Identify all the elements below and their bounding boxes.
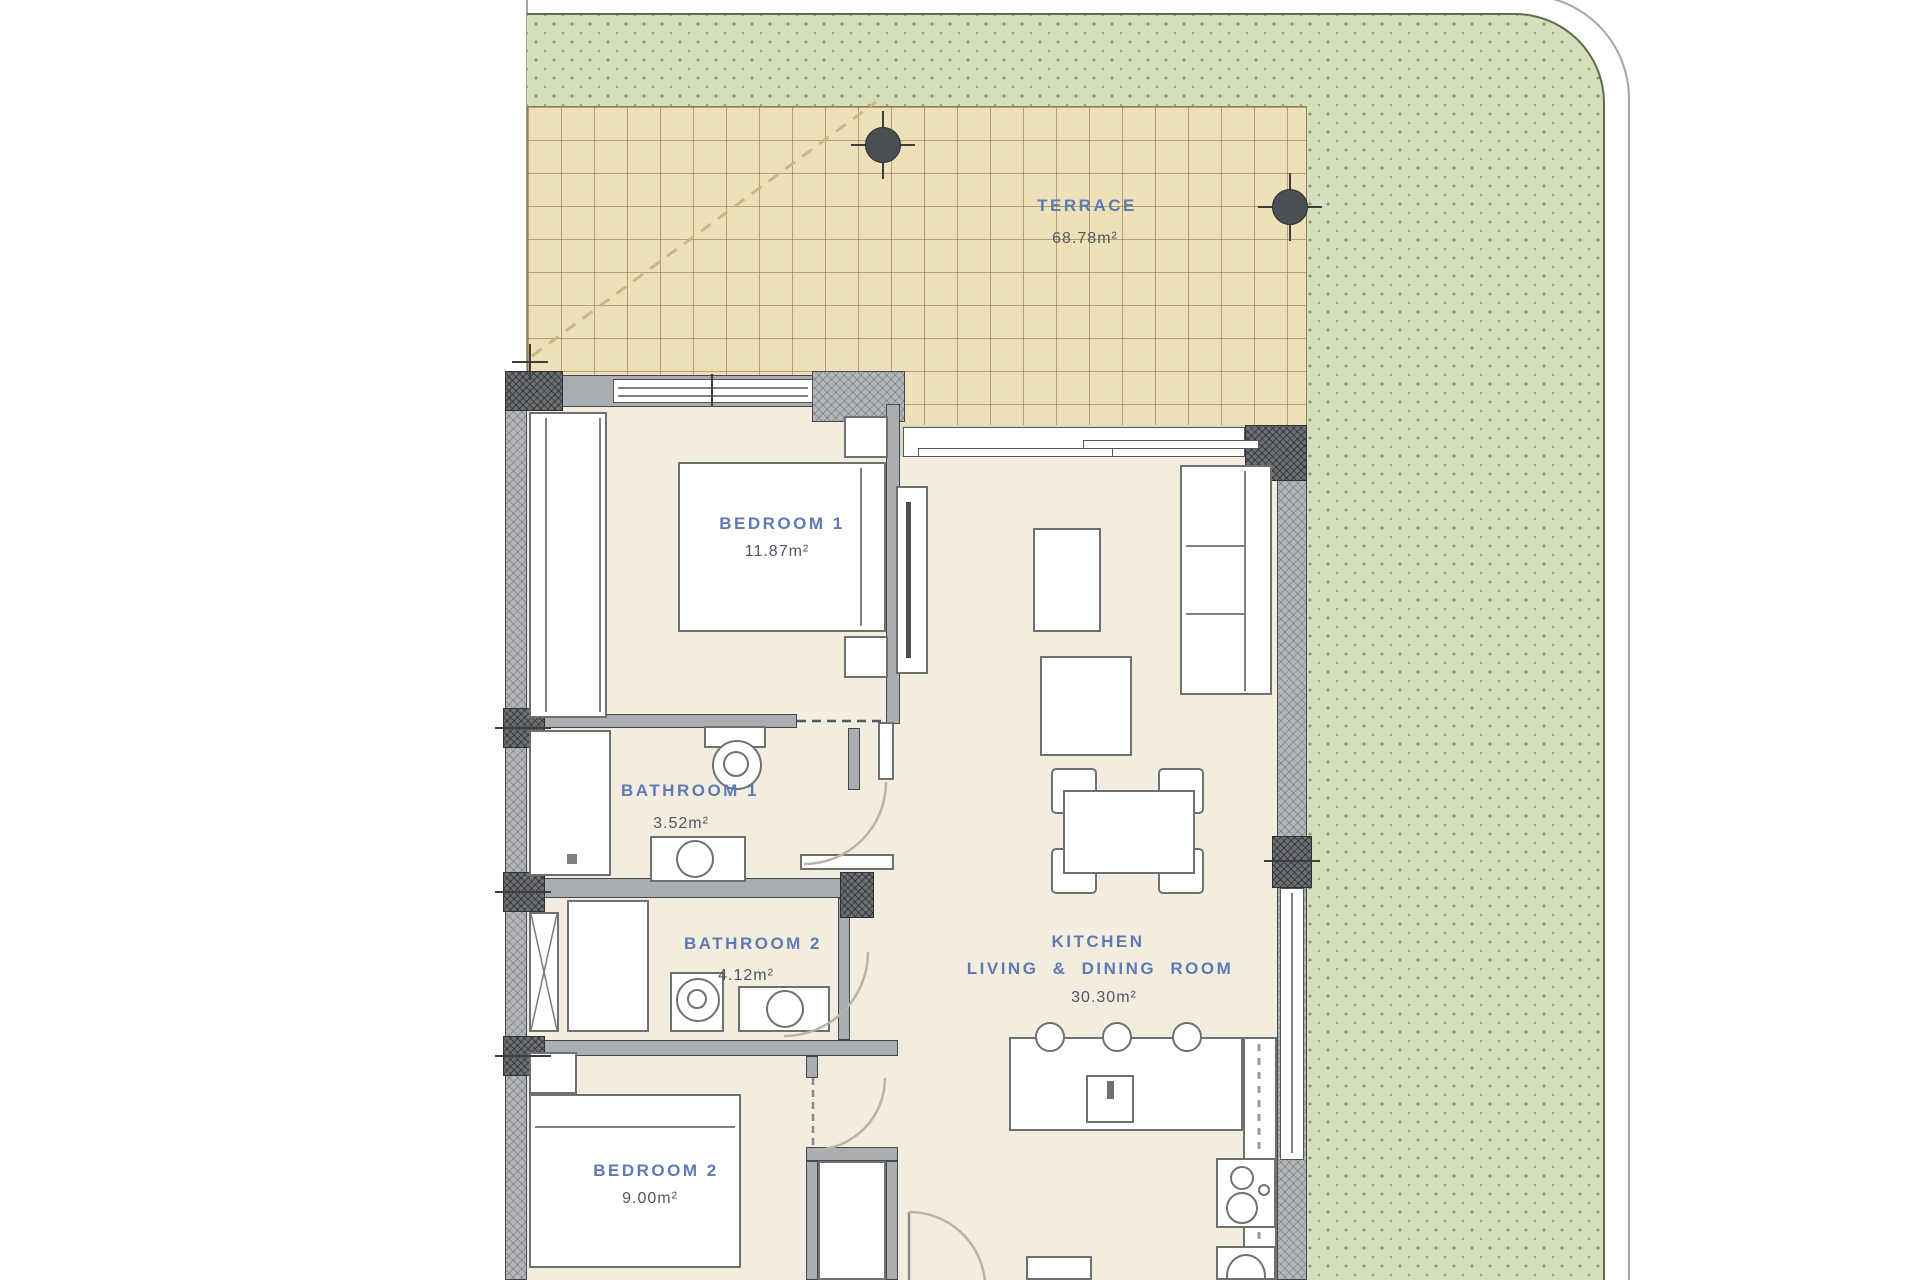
kitchen-sink-bottom [1216,1246,1276,1280]
wall-bathroom1-right [848,728,860,790]
wall-left-outer [505,375,527,1280]
headboard-line [535,1126,735,1128]
column-left-2 [503,872,545,912]
label-kitchen-line1: KITCHEN [1051,932,1144,952]
wall-hall-horizontal [806,1147,898,1161]
side-table [1040,656,1132,756]
tv-unit [896,486,928,674]
nightstand-bedroom1-top [844,416,888,458]
label-bathroom2: BATHROOM 2 [684,934,822,954]
hall-console [800,854,894,870]
floor-plan: TERRACE 68.78m² BEDROOM 1 11.87m² BATHRO… [0,0,1920,1280]
column-hall [840,872,874,918]
toilet-bowl-inner [687,989,707,1009]
window-frame-line [618,387,808,389]
bed-bedroom2 [529,1094,741,1268]
duct-bathroom2 [529,912,559,1032]
sofa-cushion-line [1186,613,1244,615]
dining-table [1063,790,1195,874]
label-kitchen-line2: LIVING & DINING ROOM [967,959,1234,979]
label-terrace: TERRACE [1037,196,1137,216]
wall-hall-living-divider [886,1161,898,1280]
bar-stool [1102,1022,1132,1052]
window-frame-line [1291,893,1293,1153]
toilet-bowl-bathroom2 [676,978,720,1022]
wardrobe-panel-line [545,418,547,712]
faucet-icon [1107,1081,1114,1099]
shower-drain [567,854,577,864]
coffee-table [1033,528,1101,632]
label-terrace-area: 68.78m² [1052,230,1118,248]
door-leaf-bathroom1 [878,722,894,780]
shower-bathroom2 [567,900,649,1032]
utility-shaft [818,1161,886,1280]
sofa-cushion-line [1186,545,1244,547]
label-bathroom1: BATHROOM 1 [621,781,759,801]
bar-stool [1172,1022,1202,1052]
kitchen-window-right [1280,888,1304,1160]
burner-icon [1258,1184,1270,1196]
headboard-line [860,468,862,626]
sofa [1180,465,1272,695]
sliding-panel-2 [1083,440,1259,449]
shower-bathroom1 [529,730,611,876]
bedroom1-window [613,379,813,403]
label-bathroom2-area: 4.12m² [718,967,774,985]
column-right-middle [1272,836,1312,888]
label-bedroom2: BEDROOM 2 [593,1161,718,1181]
tv-screen [906,502,911,658]
bar-stool [1035,1022,1065,1052]
window-frame-line [618,395,808,397]
sliding-panel-1 [918,448,1113,457]
wall-bathroom2-right [838,898,850,1040]
nightstand-bedroom1-bottom [844,636,888,678]
column-top-left [505,371,563,411]
bottom-table [1026,1256,1092,1280]
label-bedroom1: BEDROOM 1 [719,514,844,534]
burner-icon [1230,1166,1254,1190]
wall-bedroom2-right-lower [806,1161,818,1280]
label-kitchen-area: 30.30m² [1071,989,1137,1007]
label-bathroom1-area: 3.52m² [653,815,709,833]
wardrobe-panel-line [599,418,601,712]
sink-bathroom1 [676,840,714,878]
label-bedroom1-area: 11.87m² [745,543,810,561]
toilet-bowl-inner [723,751,749,777]
wall-bedroom2-right-upper [806,1056,818,1078]
column-marker [865,127,901,163]
burner-icon [1226,1192,1258,1224]
sink-bathroom2 [766,990,804,1028]
nightstand-bedroom2 [529,1052,577,1094]
wardrobe-bedroom1 [529,412,607,718]
label-bedroom2-area: 9.00m² [622,1190,678,1208]
cooktop [1216,1158,1276,1228]
column-marker [1272,189,1308,225]
basin-icon [1226,1254,1266,1280]
sofa-back-line [1244,471,1246,691]
island-sink [1086,1075,1134,1123]
